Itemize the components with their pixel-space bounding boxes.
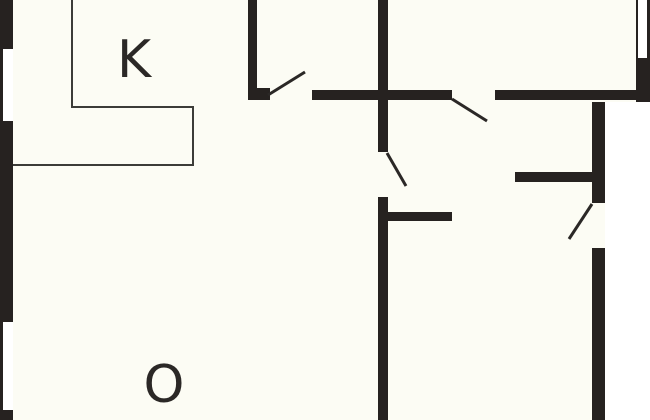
window-top-right-window (638, 0, 647, 58)
floor-plan-canvas: KO (0, 0, 650, 420)
center-vertical-wall-lower-wall (378, 197, 388, 420)
window-left-lower-window (3, 322, 13, 410)
floor-plan: KO (0, 0, 650, 420)
counter-edge-bottom-line (13, 164, 194, 166)
right-exterior-wall-upper-wall (592, 102, 605, 203)
top-partition-door-jamb-wall (248, 88, 270, 100)
door-swing-top-room-icon (268, 72, 305, 95)
hall-horizontal-wall-right-wall (495, 90, 650, 100)
room-label-living-room: O (144, 359, 185, 411)
hall-horizontal-wall-left-wall (312, 90, 452, 100)
door-swing-hall-lower-icon (387, 153, 406, 186)
bedroom-wall-left-wall (388, 212, 452, 221)
window-left-upper-window (3, 49, 13, 121)
room-label-kitchen: K (117, 34, 151, 86)
bedroom-wall-right-wall (515, 172, 592, 182)
counter-edge-right-line (192, 106, 194, 166)
counter-edge-left-line (71, 0, 73, 108)
outside-right (605, 102, 650, 420)
door-swing-layer (0, 0, 650, 420)
top-partition-wall-wall (248, 0, 257, 90)
door-swing-entrance-icon (569, 204, 592, 239)
door-swing-hall-right-icon (452, 99, 487, 121)
right-exterior-wall-lower-wall (592, 248, 605, 420)
center-vertical-wall-upper-wall (378, 0, 388, 152)
counter-edge-top-line (71, 106, 194, 108)
